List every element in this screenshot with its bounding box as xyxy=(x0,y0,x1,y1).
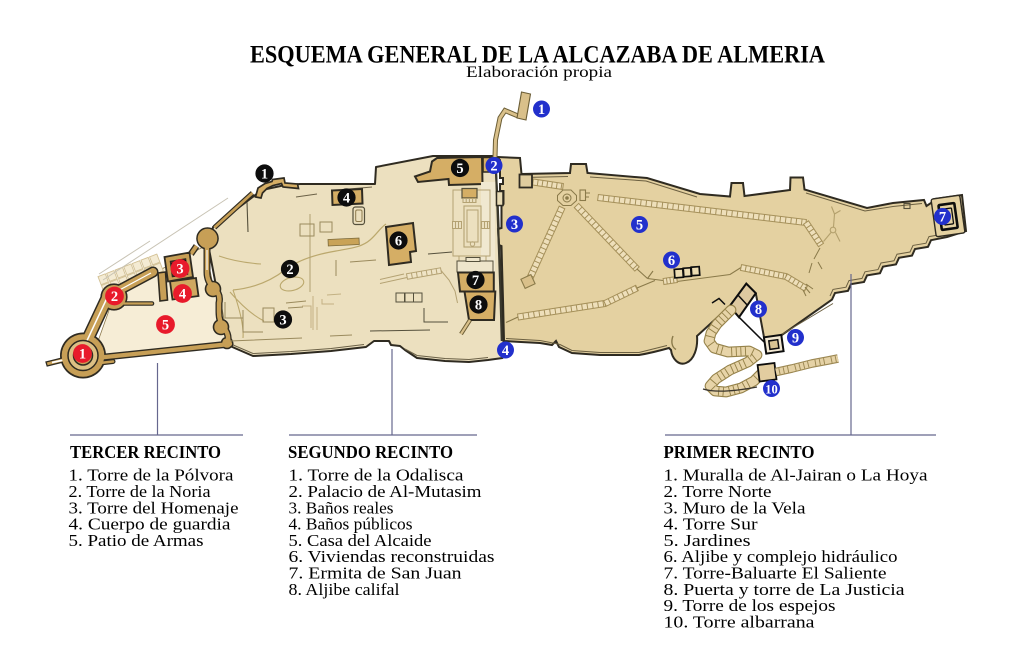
svg-text:2: 2 xyxy=(111,289,118,305)
svg-text:1: 1 xyxy=(538,102,545,118)
svg-text:6: 6 xyxy=(668,253,675,269)
svg-text:7: 7 xyxy=(939,209,946,225)
svg-text:8: 8 xyxy=(755,302,762,318)
svg-text:8. Aljibe califal: 8. Aljibe califal xyxy=(289,580,400,599)
svg-text:4: 4 xyxy=(343,190,350,206)
svg-text:7: 7 xyxy=(472,273,479,289)
svg-text:10. Torre albarrana: 10. Torre albarrana xyxy=(664,612,816,631)
svg-text:8: 8 xyxy=(475,297,482,313)
svg-text:2: 2 xyxy=(490,158,497,174)
svg-text:SEGUNDO RECINTO: SEGUNDO RECINTO xyxy=(288,442,453,462)
svg-text:TERCER RECINTO: TERCER RECINTO xyxy=(70,442,221,462)
svg-text:9: 9 xyxy=(792,330,799,346)
svg-text:5: 5 xyxy=(162,317,169,333)
svg-text:5: 5 xyxy=(456,161,463,177)
svg-text:Elaboración propia: Elaboración propia xyxy=(466,64,612,81)
svg-text:6: 6 xyxy=(395,233,402,249)
svg-text:3: 3 xyxy=(279,312,286,328)
svg-text:1: 1 xyxy=(79,346,86,362)
svg-text:3: 3 xyxy=(511,217,518,233)
svg-text:4: 4 xyxy=(179,286,186,302)
svg-text:5. Patio de Armas: 5. Patio de Armas xyxy=(69,531,204,550)
svg-text:1: 1 xyxy=(261,166,268,182)
svg-text:3: 3 xyxy=(176,261,183,277)
svg-text:PRIMER RECINTO: PRIMER RECINTO xyxy=(664,442,815,462)
svg-text:5: 5 xyxy=(636,217,643,233)
svg-text:4: 4 xyxy=(502,343,509,359)
svg-text:2: 2 xyxy=(286,262,293,278)
svg-text:10: 10 xyxy=(765,382,778,396)
